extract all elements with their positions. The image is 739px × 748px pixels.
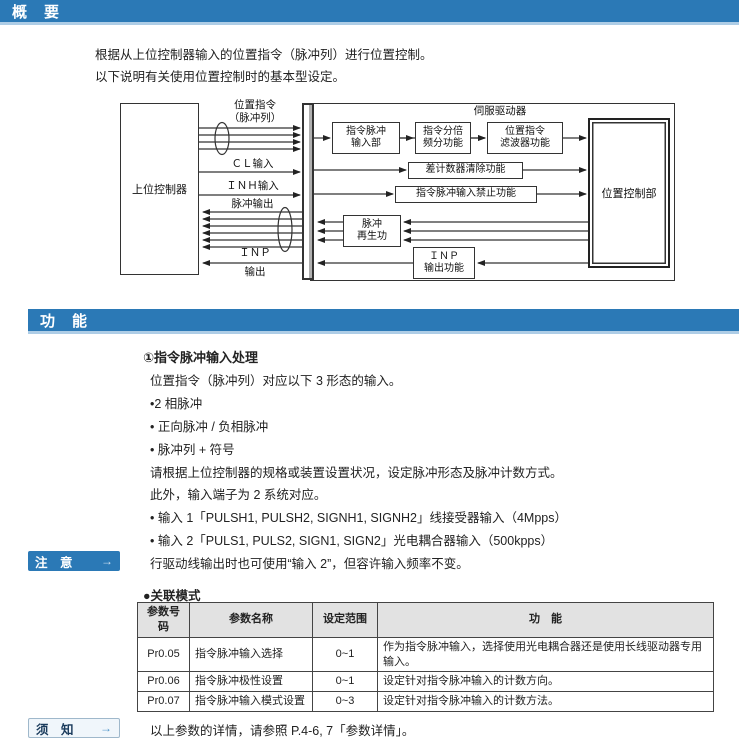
function-line: • 脉冲列 + 符号 (150, 439, 235, 458)
param-name: 指令脉冲输入选择 (190, 637, 313, 672)
param-range: 0~1 (313, 672, 378, 692)
notice-badge-label: 须 知 (36, 719, 74, 738)
parameter-table: 参数号码 参数名称 设定范围 功 能 Pr0.05 指令脉冲输入选择 0~1 作… (137, 602, 714, 712)
table-row: Pr0.05 指令脉冲输入选择 0~1 作为指令脉冲输入，选择使用光电耦合器还是… (138, 637, 714, 672)
label-inp-output-bottom: 输出 (215, 266, 295, 279)
function-line: • 输入 1「PULSH1, PULSH2, SIGNH1, SIGNH2」线接… (150, 507, 567, 526)
col-header-setting-range: 设定范围 (313, 603, 378, 638)
overview-paragraph-line1: 根据从上位控制器输入的位置指令（脉冲列）进行位置控制。 (95, 44, 433, 63)
section-header-overview: 概 要 (0, 0, 739, 25)
table-row: Pr0.06 指令脉冲极性设置 0~1 设定针对指令脉冲输入的计数方向。 (138, 672, 714, 692)
host-controller-box: 上位控制器 (120, 103, 199, 275)
box-input-inhibit: 指令脉冲输入禁止功能 (395, 186, 537, 203)
param-code: Pr0.06 (138, 672, 190, 692)
box-frequency-divider: 指令分倍 频分功能 (415, 122, 471, 154)
col-header-param-number: 参数号码 (138, 603, 190, 638)
section-header-overview-label: 概 要 (12, 1, 60, 22)
servo-driver-label: 伺服驱动器 (455, 105, 545, 118)
notice-text: 以上参数的详情，请参照 P.4-6, 7「参数详情」。 (150, 720, 414, 739)
param-function: 设定针对指令脉冲输入的计数方法。 (378, 692, 714, 712)
function-line: 位置指令（脉冲列）对应以下 3 形态的输入。 (150, 370, 401, 389)
param-function: 设定针对指令脉冲输入的计数方向。 (378, 672, 714, 692)
section-header-function-label: 功 能 (40, 310, 88, 331)
notice-badge: 须 知 → (28, 718, 120, 738)
param-code: Pr0.07 (138, 692, 190, 712)
function-line: •2 相脉冲 (150, 393, 202, 412)
function-line: 请根据上位控制器的规格或装置设置状况，设定脉冲形态及脉冲计数方式。 (150, 462, 563, 481)
param-code: Pr0.05 (138, 637, 190, 672)
param-function: 作为指令脉冲输入，选择使用光电耦合器还是使用长线驱动器专用输入。 (378, 637, 714, 672)
col-header-function: 功 能 (378, 603, 714, 638)
param-range: 0~1 (313, 637, 378, 672)
note-text: 行驱动线输出时也可使用“输入 2”，但容许输入频率不变。 (150, 553, 469, 572)
param-name: 指令脉冲极性设置 (190, 672, 313, 692)
note-badge-label: 注 意 (35, 552, 73, 571)
label-position-command: 位置指令 （脉冲列） (210, 99, 300, 124)
label-inp-output-top: ＩＮＰ (215, 247, 295, 260)
position-control-box: 位置控制部 (588, 118, 670, 268)
box-command-filter: 位置指令 滤波器功能 (487, 122, 563, 154)
label-cl-input: ＣＬ输入 (205, 158, 300, 171)
param-name: 指令脉冲输入模式设置 (190, 692, 313, 712)
parameter-table-header-row: 参数号码 参数名称 设定范围 功 能 (138, 603, 714, 638)
box-inp-output: ＩＮＰ 输出功能 (413, 247, 475, 279)
col-header-param-name: 参数名称 (190, 603, 313, 638)
overview-paragraph-line2: 以下说明有关使用位置控制时的基本型设定。 (95, 66, 345, 85)
connector-bar (302, 103, 314, 280)
box-pulse-regeneration: 脉冲 再生功 (343, 215, 401, 247)
label-inh-input: ＩＮＨ输入 (205, 180, 300, 193)
param-range: 0~3 (313, 692, 378, 712)
function-line: 此外，输入端子为 2 系统对应。 (150, 484, 326, 503)
note-badge-arrow-icon: → (101, 554, 113, 568)
box-counter-clear: 差计数器清除功能 (408, 162, 523, 179)
note-badge: 注 意 → (28, 551, 120, 571)
table-row: Pr0.07 指令脉冲输入模式设置 0~3 设定针对指令脉冲输入的计数方法。 (138, 692, 714, 712)
function-line: • 正向脉冲 / 负相脉冲 (150, 416, 268, 435)
notice-badge-arrow-icon: → (100, 721, 112, 735)
section-header-function: 功 能 (28, 309, 739, 334)
function-subtitle: ①指令脉冲输入处理 (143, 347, 258, 366)
function-line: • 输入 2「PULS1, PULS2, SIGN1, SIGN2」光电耦合器输… (150, 530, 553, 549)
manual-page: 概 要 根据从上位控制器输入的位置指令（脉冲列）进行位置控制。 以下说明有关使用… (0, 0, 739, 748)
label-pulse-output: 脉冲输出 (205, 198, 300, 211)
box-command-pulse-input: 指令脉冲 输入部 (332, 122, 400, 154)
